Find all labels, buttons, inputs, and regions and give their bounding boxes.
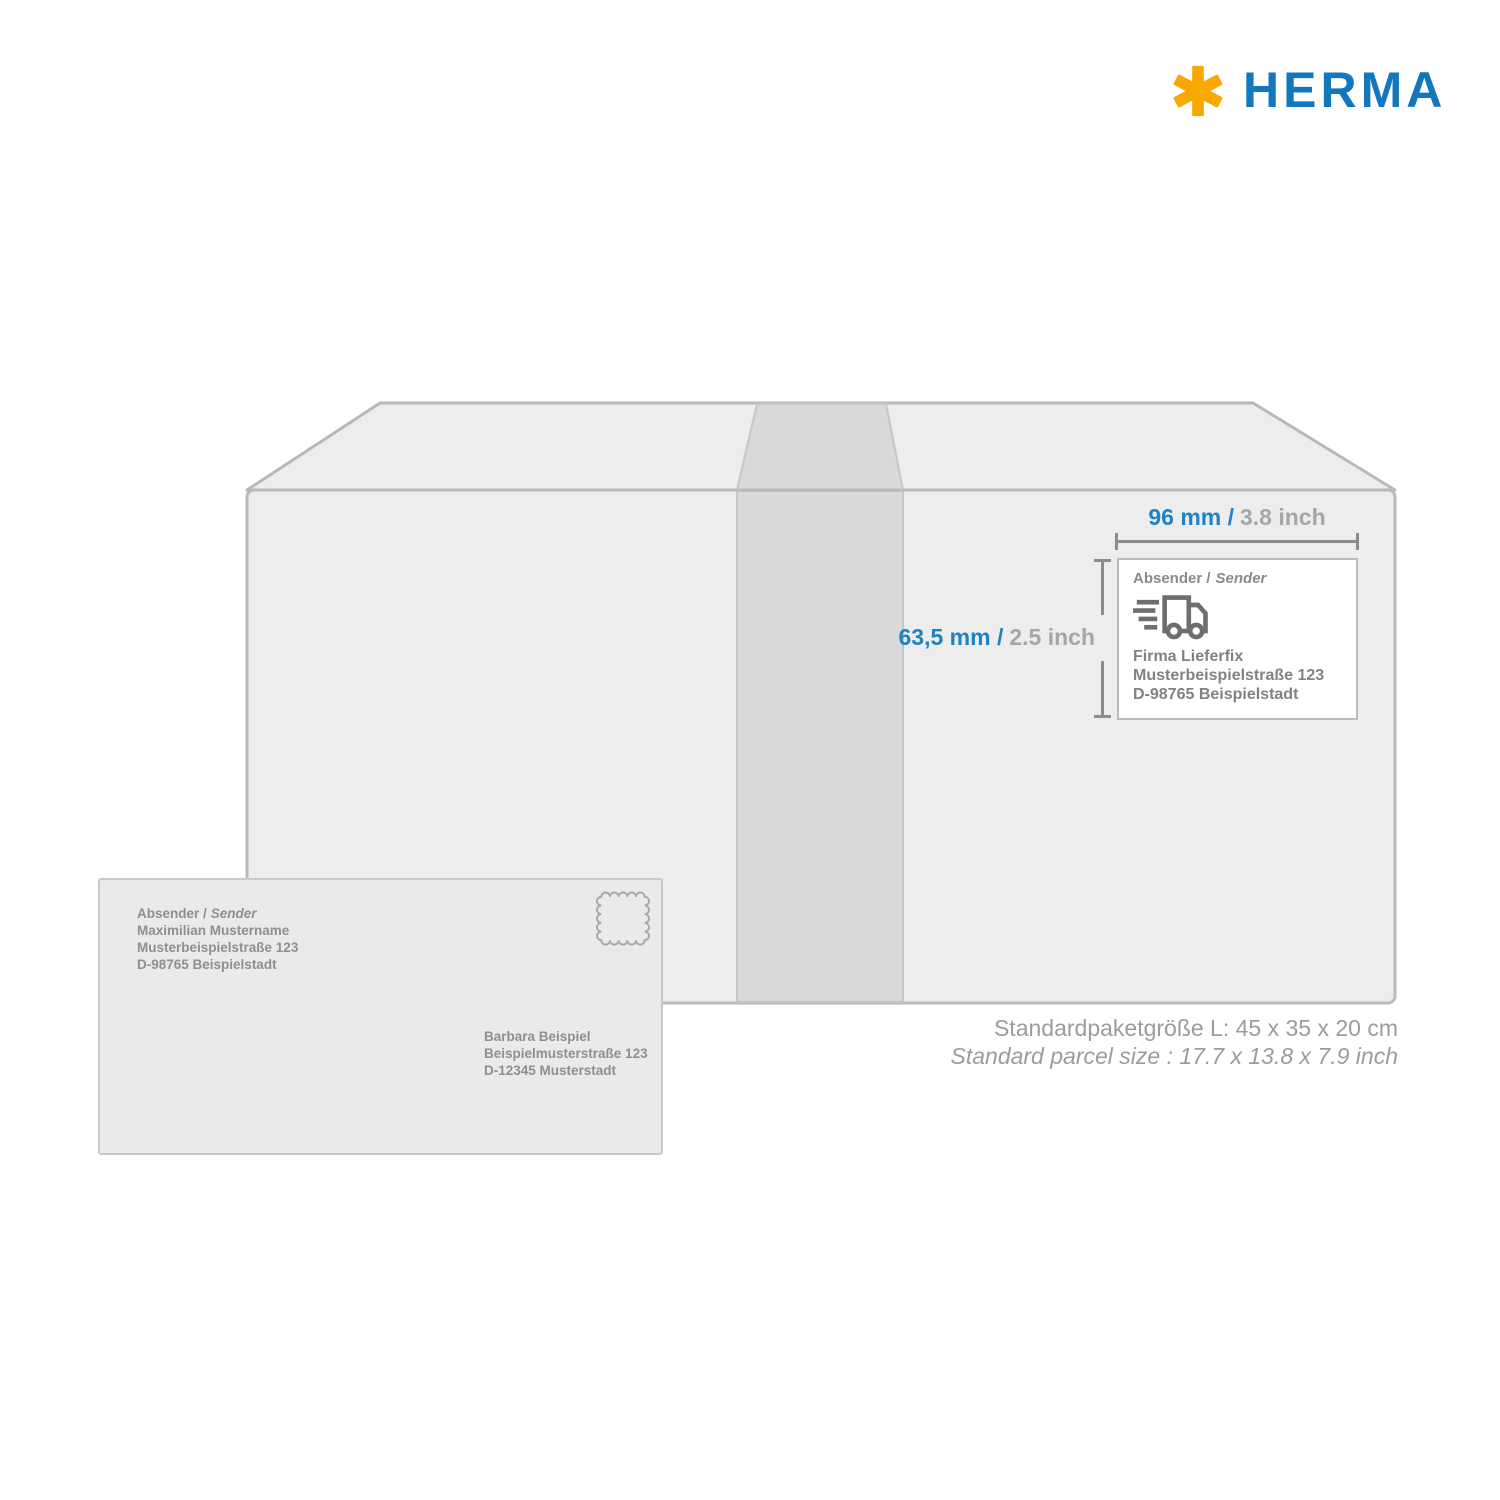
height-dimension-line-top bbox=[1101, 559, 1104, 615]
envelope: Absender /Sender Maximilian Mustername M… bbox=[98, 878, 663, 1155]
tape-strip-front bbox=[737, 491, 903, 1002]
height-metric-value: 63,5 mm / bbox=[899, 624, 1004, 650]
envelope-sender-line: D-98765 Beispielstadt bbox=[137, 956, 298, 973]
parcel-size-note-en: Standard parcel size : 17.7 x 13.8 x 7.9… bbox=[898, 1042, 1398, 1070]
height-dimension-label: 63,5 mm /2.5 inch bbox=[840, 624, 1095, 651]
width-imperial-value: 3.8 inch bbox=[1240, 504, 1326, 530]
page-canvas: HERMA 96 mm /3.8 inch 63,5 mm /2.5 inch … bbox=[0, 0, 1500, 1500]
shipping-label: Absender /Sender Firma Lieferfix Musterb… bbox=[1117, 558, 1358, 720]
postage-stamp-icon bbox=[596, 890, 650, 948]
envelope-sender-line: Musterbeispielstraße 123 bbox=[137, 939, 298, 956]
shipping-label-address: Firma Lieferfix Musterbeispielstraße 123… bbox=[1133, 647, 1346, 704]
envelope-recipient-line: D-12345 Musterstadt bbox=[484, 1062, 648, 1079]
shipping-label-header: Absender /Sender bbox=[1133, 570, 1346, 587]
herma-logo: HERMA bbox=[1172, 62, 1446, 120]
brand-wordmark: HERMA bbox=[1243, 65, 1446, 117]
parcel-size-note-de: Standardpaketgröße L: 45 x 35 x 20 cm bbox=[898, 1014, 1398, 1042]
address-line: Musterbeispielstraße 123 bbox=[1133, 666, 1346, 685]
envelope-recipient-line: Barbara Beispiel bbox=[484, 1028, 648, 1045]
parcel-box-graphic bbox=[0, 0, 1500, 1500]
height-imperial-value: 2.5 inch bbox=[1009, 624, 1095, 650]
tape-strip-top bbox=[737, 404, 903, 490]
envelope-sender-label-en: Sender bbox=[211, 906, 257, 921]
address-line: Firma Lieferfix bbox=[1133, 647, 1346, 666]
envelope-sender-block: Absender /Sender Maximilian Mustername M… bbox=[137, 905, 298, 973]
envelope-recipient-block: Barbara Beispiel Beispielmusterstraße 12… bbox=[484, 1028, 648, 1079]
envelope-recipient-line: Beispielmusterstraße 123 bbox=[484, 1045, 648, 1062]
sender-label-de: Absender / bbox=[1133, 570, 1211, 587]
width-dimension-label: 96 mm /3.8 inch bbox=[1105, 504, 1369, 531]
envelope-sender-header: Absender /Sender bbox=[137, 905, 298, 922]
herma-asterisk-icon bbox=[1172, 62, 1224, 120]
parcel-size-note: Standardpaketgröße L: 45 x 35 x 20 cm St… bbox=[898, 1014, 1398, 1070]
envelope-sender-line: Maximilian Mustername bbox=[137, 922, 298, 939]
envelope-sender-label-de: Absender / bbox=[137, 906, 207, 921]
height-dimension-line-bottom bbox=[1101, 661, 1104, 718]
width-dimension-line bbox=[1115, 540, 1359, 543]
width-metric-value: 96 mm / bbox=[1148, 504, 1234, 530]
delivery-truck-icon bbox=[1131, 592, 1215, 644]
sender-label-en: Sender bbox=[1216, 570, 1267, 587]
address-line: D-98765 Beispielstadt bbox=[1133, 685, 1346, 704]
